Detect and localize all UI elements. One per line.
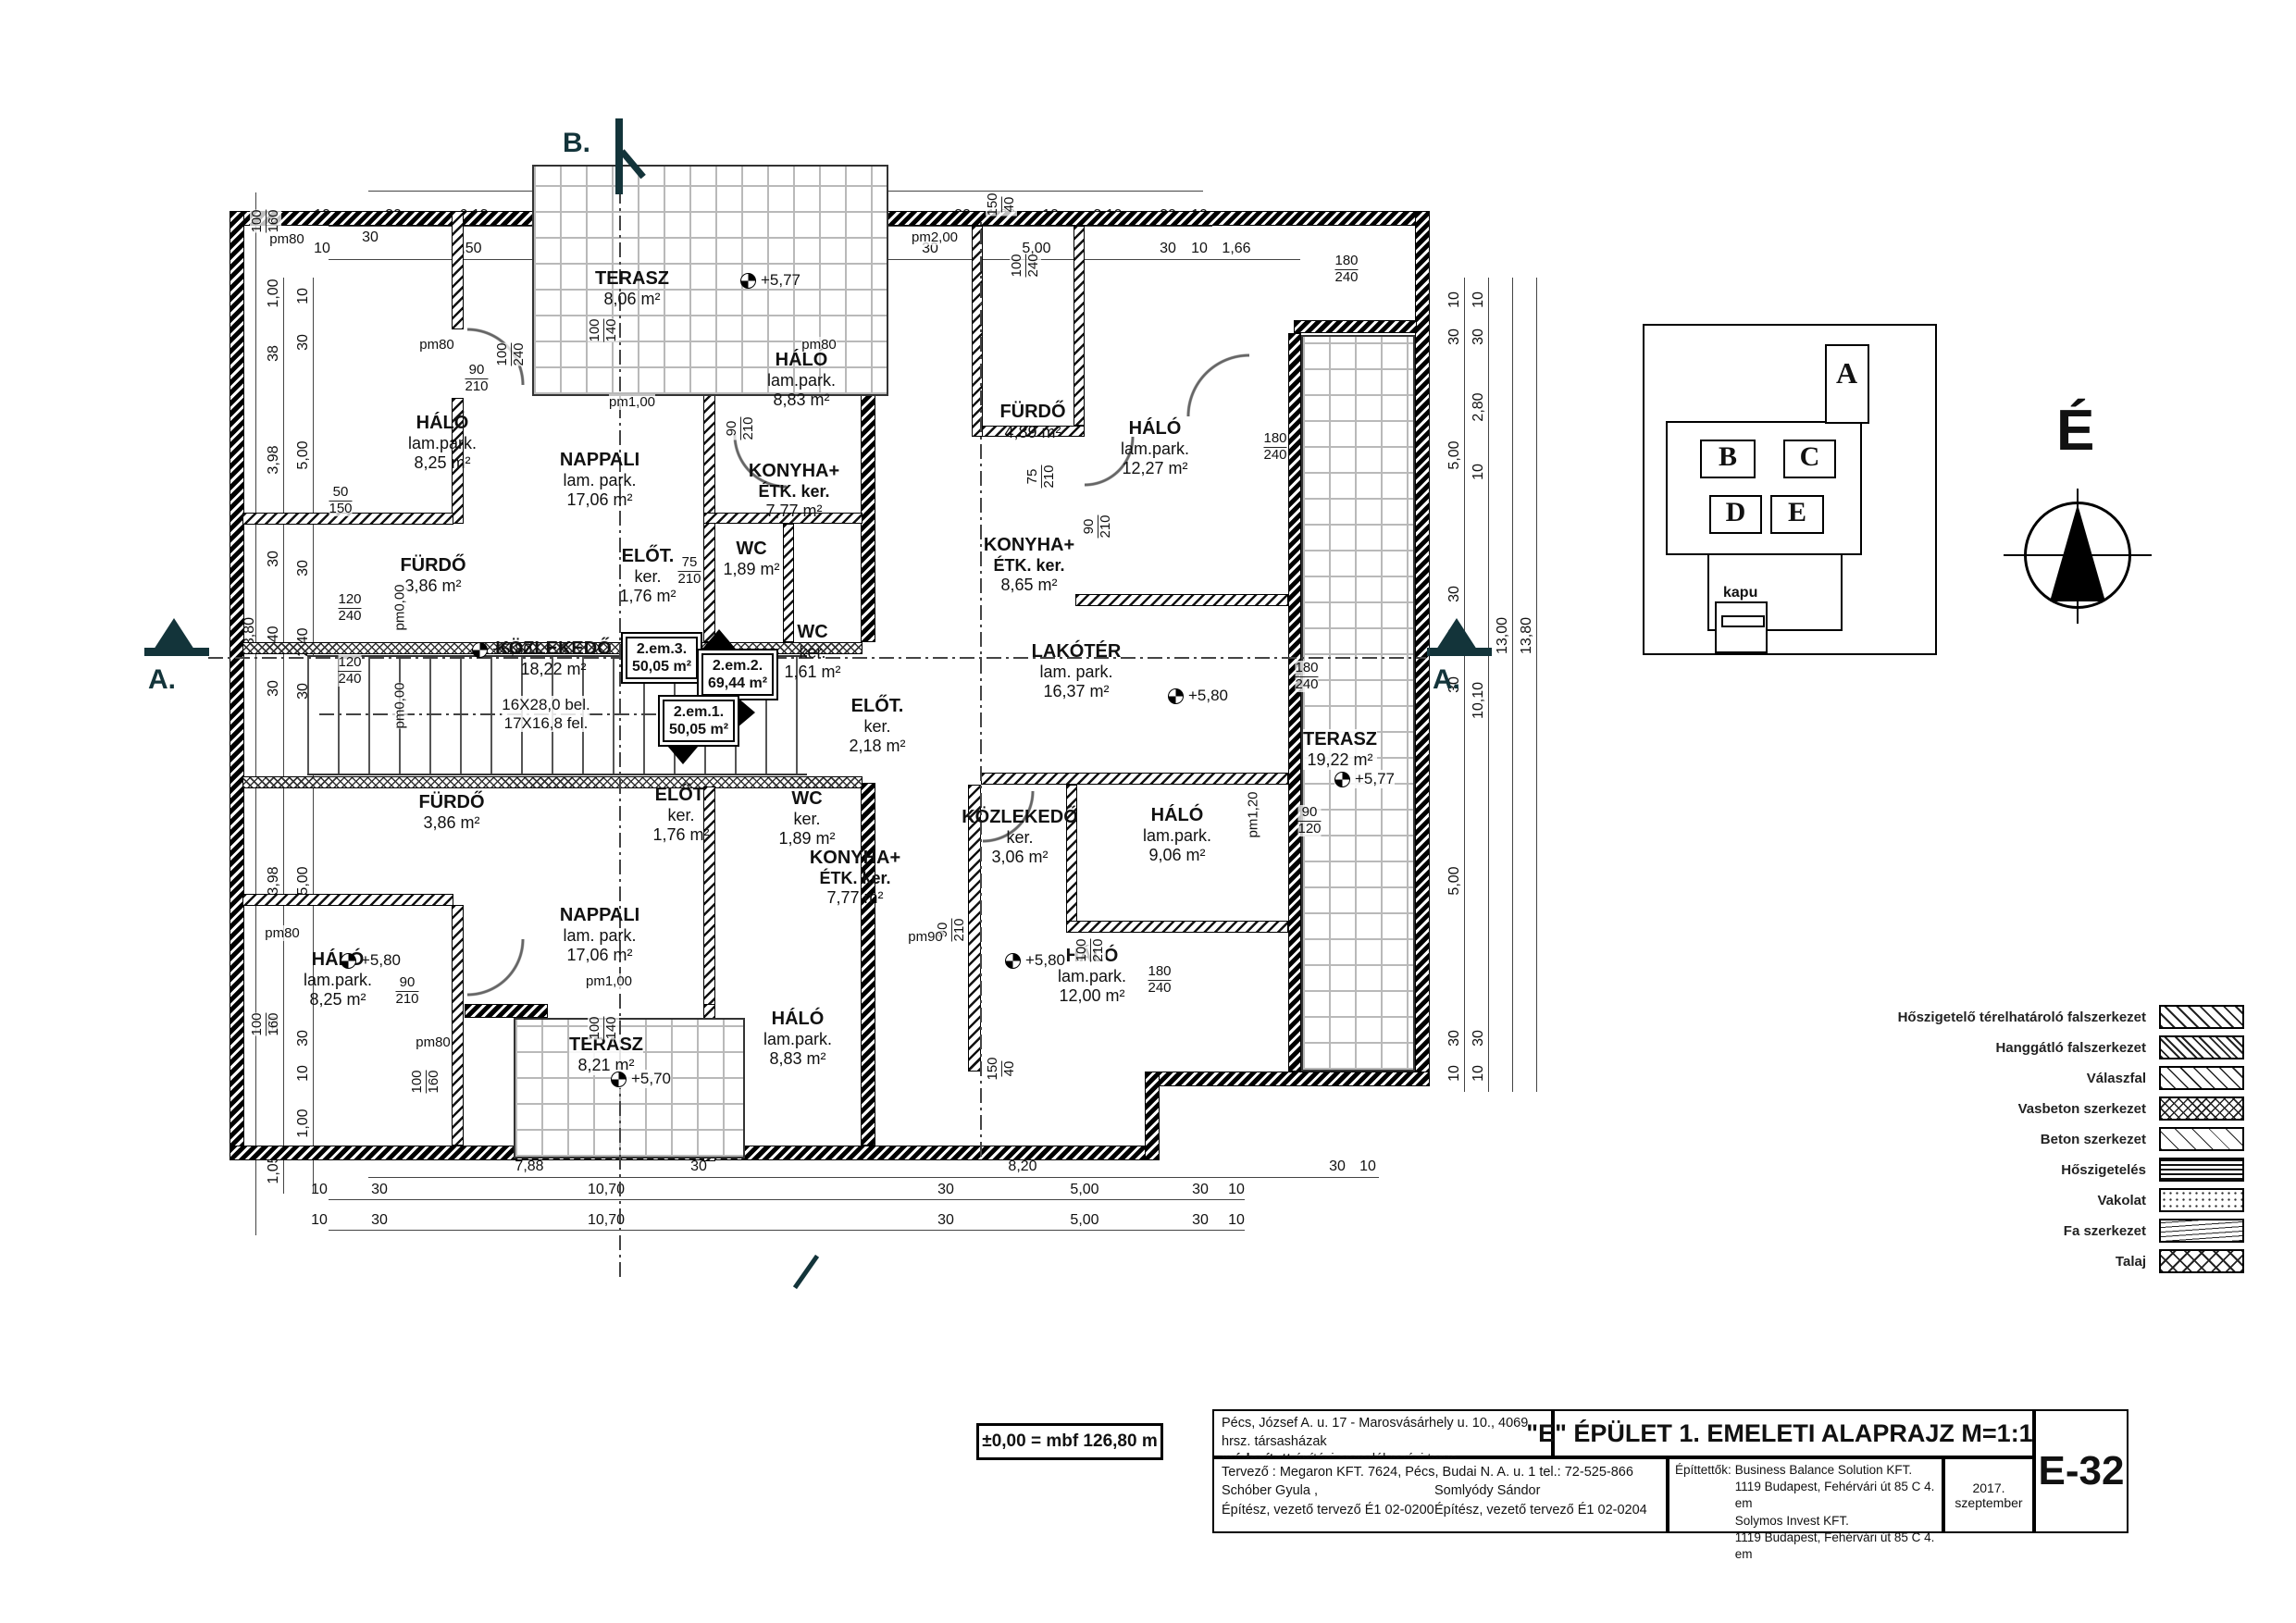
door-arc	[1185, 352, 1249, 416]
benchmark-icon	[1334, 772, 1350, 787]
north-label: É	[2056, 398, 2094, 464]
dim-label: 30	[295, 536, 312, 601]
room-label: NAPPALIlam. park.17,06 m²	[560, 905, 639, 964]
opening-label: 90120	[1297, 805, 1321, 836]
section-b-end	[793, 1255, 819, 1289]
opening-label: 100160	[410, 1070, 441, 1093]
dim-label: 10	[314, 241, 330, 257]
pm-label: pm1,00	[586, 973, 632, 989]
dim-label: 10	[1191, 241, 1208, 257]
legend-swatch	[2159, 1035, 2244, 1059]
dim-label: 30	[266, 527, 282, 591]
pm-label: pm1,20	[1246, 791, 1261, 837]
dim-line	[368, 1177, 1379, 1178]
room-label: WCker.1,89 m²	[778, 788, 835, 848]
keyplan-gate-bar	[1721, 615, 1765, 627]
room-label: WCker.1,61 m²	[784, 622, 840, 681]
legend-swatch	[2159, 1127, 2244, 1151]
opening-label: 100210	[1074, 938, 1106, 961]
legend-row: Talaj	[1805, 1249, 2244, 1273]
pm-label: pm0,00	[392, 682, 408, 728]
wall-partition	[452, 211, 464, 329]
keyplan-block-c: C	[1783, 440, 1836, 478]
benchmark-icon	[472, 642, 488, 658]
dim-label: 3,98	[266, 427, 282, 492]
legend-row: Vakolat	[1805, 1188, 2244, 1212]
level-marker: +5,80	[341, 951, 401, 970]
keyplan-gate-label: kapu	[1723, 585, 1757, 601]
dim-label: 38	[266, 321, 282, 386]
wall-partition	[242, 894, 453, 906]
section-line-b	[619, 139, 621, 1277]
dim-label: 10	[1471, 1041, 1487, 1106]
legend-swatch	[2159, 1066, 2244, 1090]
titleblock-sheet-number: E-32	[2034, 1409, 2128, 1533]
dim-label: 5,00	[295, 423, 312, 488]
keyplan-site	[1715, 601, 1768, 653]
room-label: NAPPALIlam. park.17,06 m²	[560, 450, 639, 509]
dim-line	[329, 1199, 1245, 1200]
room-label: KONYHA+ÉTK. ker.8,65 m²	[984, 535, 1074, 594]
room-label: FÜRDŐ4,89 m²	[999, 402, 1065, 442]
dim-label: 30	[937, 1212, 954, 1229]
wall-partition	[1066, 921, 1288, 933]
legend-swatch	[2159, 1188, 2244, 1212]
wall-recessed-bottom	[465, 1004, 548, 1018]
legend-row: Hőszigetelés	[1805, 1158, 2244, 1182]
door-arc	[467, 939, 527, 998]
opening-label: 100160	[250, 1012, 281, 1035]
pm-label: pm80	[269, 231, 304, 247]
wall-partition	[1074, 226, 1085, 426]
room-label: LAKÓTÉRlam. park.16,37 m²	[1032, 641, 1122, 700]
legend-row: Válaszfal	[1805, 1066, 2244, 1090]
wall-party-lower	[861, 783, 875, 1146]
legend-row: Fa szerkezet	[1805, 1219, 2244, 1243]
opening-label: 90210	[465, 363, 488, 394]
dim-label: 30	[371, 1182, 388, 1198]
dim-label: 30	[1329, 1158, 1346, 1175]
dim-line	[1464, 278, 1465, 1092]
opening-label: 90210	[1082, 514, 1113, 538]
dim-label: 10	[1471, 440, 1487, 504]
dim-line	[1536, 278, 1537, 1092]
room-label: ELŐT.ker.1,76 m²	[652, 785, 709, 844]
room-label: ELŐT.ker.2,18 m²	[849, 696, 905, 755]
dim-label: 30	[371, 1212, 388, 1229]
dim-label: 5,00	[1446, 423, 1463, 488]
wall-left	[230, 211, 244, 1160]
opening-label: 120240	[338, 655, 361, 687]
stair-text: 16X28,0 bel. 17X16,8 fel.	[502, 696, 590, 732]
dim-label: 30	[1160, 241, 1176, 257]
pm-label: pm80	[416, 1035, 451, 1050]
room-label: HÁLÓlam.park.9,06 m²	[1143, 805, 1211, 864]
dim-label: 30	[1471, 304, 1487, 369]
terrace-right	[1301, 335, 1415, 1072]
legend-row: Beton szerkezet	[1805, 1127, 2244, 1151]
dim-label: 13,80	[1519, 603, 1535, 668]
pm-label: pm80	[265, 925, 300, 941]
opening-label: 90210	[725, 416, 756, 440]
dim-line	[255, 192, 256, 1235]
dim-label: 30	[1192, 1212, 1209, 1229]
room-label: HÁLÓlam.park.8,83 m²	[763, 1009, 832, 1068]
keyplan-block-e: E	[1770, 495, 1824, 534]
dim-label: 1,00	[266, 261, 282, 326]
section-marker-a-left: A.	[148, 664, 176, 696]
opening-label: 180240	[1263, 431, 1286, 463]
room-label: FÜRDŐ3,86 m²	[418, 792, 484, 833]
legend-swatch	[2159, 1158, 2244, 1182]
benchmark-icon	[740, 273, 756, 289]
pm-label: pm2,00	[912, 229, 958, 245]
section-a-left-arrow	[154, 618, 194, 650]
dim-label: 10	[1228, 1212, 1245, 1229]
opening-label: 180240	[1148, 964, 1171, 996]
keyplan-block-b: B	[1700, 440, 1756, 478]
wall-partition	[452, 905, 464, 1146]
dim-label: 5,00	[1070, 1212, 1098, 1229]
pm-label: pm90	[908, 929, 943, 945]
dim-label: 2,80	[1471, 375, 1487, 440]
section-a-right-bar	[1427, 648, 1492, 656]
dim-label: 10	[1228, 1182, 1245, 1198]
dim-label: 10	[311, 1182, 328, 1198]
opening-label: 100160	[250, 209, 281, 232]
legend-row: Hanggátló falszerkezet	[1805, 1035, 2244, 1059]
pm-label: pm80	[801, 337, 837, 353]
legend-row: Hőszigetelő térelhatároló falszerkezet	[1805, 1005, 2244, 1029]
titleblock-clients: Építtettők: Business Balance Solution KF…	[1668, 1457, 1943, 1533]
room-label: ELŐT.ker.1,76 m²	[619, 546, 676, 605]
centerline	[980, 217, 982, 1157]
dim-label: 10	[1359, 1158, 1376, 1175]
level-marker: +5,70	[611, 1070, 671, 1088]
section-a-left-bar	[144, 648, 209, 656]
titleblock-title: "E" ÉPÜLET 1. EMELETI ALAPRAJZ M=1:100	[1553, 1409, 2034, 1457]
datum-box: ±0,00 = mbf 126,80 m	[976, 1423, 1163, 1460]
benchmark-icon	[1005, 953, 1021, 969]
titleblock-designer: Tervező : Megaron KFT. 7624, Pécs, Budai…	[1212, 1457, 1668, 1533]
room-label: KÖZLEKEDŐker.3,06 m²	[962, 807, 1078, 866]
section-marker-a-right: A.	[1433, 664, 1460, 696]
pm-label: pm80	[419, 337, 454, 353]
room-label: FÜRDŐ3,86 m²	[400, 555, 465, 596]
legend-swatch	[2159, 1096, 2244, 1121]
dim-label: 30	[937, 1182, 954, 1198]
room-label: KONYHA+ÉTK. ker.7,77 m²	[749, 461, 839, 520]
wall-corridor-south	[242, 776, 863, 788]
dim-label: 30	[295, 310, 312, 375]
dim-line	[1512, 278, 1513, 1092]
legend-row: Vasbeton szerkezet	[1805, 1096, 2244, 1121]
dim-label: 10	[1446, 1041, 1463, 1106]
section-marker-b: B.	[563, 128, 590, 159]
wall-top-right	[1294, 320, 1417, 333]
opening-label: 75210	[677, 555, 701, 587]
level-marker: +5,77	[740, 271, 800, 290]
pm-label: pm0,00	[392, 584, 408, 630]
level-marker: +5,80	[1005, 951, 1065, 970]
floorplan-sheet: 16,80 10 30 6,13 4,57 30 1,80 10 3,10 30…	[0, 0, 2296, 1623]
opening-label: 90210	[395, 975, 418, 1007]
section-a-right-arrow	[1436, 618, 1477, 650]
level-marker: +5,77	[1334, 770, 1395, 788]
north-needle-icon	[2050, 504, 2105, 601]
pm-label: pm1,00	[609, 394, 655, 410]
titleblock-project: Pécs, József A. u. 17 - Marosvásárhely u…	[1212, 1409, 1553, 1457]
dim-label: 5,00	[1446, 849, 1463, 913]
unit-box: 2.em.2.69,44 m²	[701, 653, 774, 696]
opening-label: 100240	[495, 342, 527, 365]
opening-label: 120240	[338, 592, 361, 624]
stair-arrow-down-icon	[663, 740, 703, 764]
opening-label: 100240	[1010, 254, 1041, 277]
dim-label: 13,00	[1495, 603, 1511, 668]
keyplan-label-a: A	[1836, 356, 1857, 390]
level-marker: +5,80	[1168, 687, 1228, 705]
dim-label: 7,88	[515, 1158, 543, 1175]
room-label: TERASZ19,22 m²	[1303, 729, 1377, 770]
keyplan-block-d: D	[1709, 495, 1762, 534]
dim-label: 8,20	[1008, 1158, 1036, 1175]
wall-terrace-bottom	[1145, 1072, 1430, 1086]
dim-label: 30	[1192, 1182, 1209, 1198]
dim-line	[283, 278, 284, 1194]
opening-label: 75210	[1025, 465, 1057, 488]
room-label: HÁLÓlam.park.8,83 m²	[767, 350, 836, 409]
level-marker: +5,80	[472, 640, 532, 659]
opening-label: 15040	[986, 192, 1017, 216]
dim-label: 10	[311, 1212, 328, 1229]
benchmark-icon	[1168, 688, 1184, 704]
dim-label: 10,10	[1471, 668, 1487, 733]
dim-label: 30	[266, 656, 282, 721]
legend: Hőszigetelő térelhatároló falszerkezet H…	[1805, 1005, 2244, 1280]
stair-arrow-up-icon	[699, 629, 739, 653]
room-label: KONYHA+ÉTK. ker.7,77 m²	[810, 848, 900, 907]
dim-line	[329, 1230, 1245, 1231]
room-label: TERASZ8,06 m²	[595, 268, 669, 309]
room-label: HÁLÓlam.park.8,25 m²	[408, 413, 477, 472]
dim-label: 1,66	[1222, 241, 1250, 257]
opening-label: 180240	[1334, 254, 1358, 285]
opening-label: 15040	[986, 1057, 1017, 1080]
room-label: WC1,89 m²	[723, 539, 779, 579]
wall-partition	[981, 773, 1288, 785]
dim-label: 5,00	[1070, 1182, 1098, 1198]
opening-label: 100140	[588, 1016, 619, 1039]
wall-step	[1145, 1072, 1160, 1160]
dim-line	[1488, 278, 1489, 1092]
opening-label: 100140	[588, 318, 619, 341]
dim-label: 30	[362, 229, 379, 246]
wall-terrace-divider	[1288, 333, 1301, 1072]
legend-swatch	[2159, 1005, 2244, 1029]
benchmark-icon	[341, 953, 356, 969]
dim-label: 30	[1446, 304, 1463, 369]
opening-label: 180240	[1295, 661, 1318, 692]
benchmark-icon	[611, 1072, 627, 1087]
unit-box: 2.em.3.50,05 m²	[626, 637, 698, 679]
legend-swatch	[2159, 1249, 2244, 1273]
unit-box: 2.em.1.50,05 m²	[663, 700, 735, 742]
titleblock-date: 2017. szeptember	[1943, 1457, 2034, 1533]
room-label: HÁLÓlam.park.12,27 m²	[1121, 418, 1189, 477]
opening-label: 50150	[329, 485, 352, 516]
legend-swatch	[2159, 1219, 2244, 1243]
wall-partition	[1075, 594, 1288, 606]
